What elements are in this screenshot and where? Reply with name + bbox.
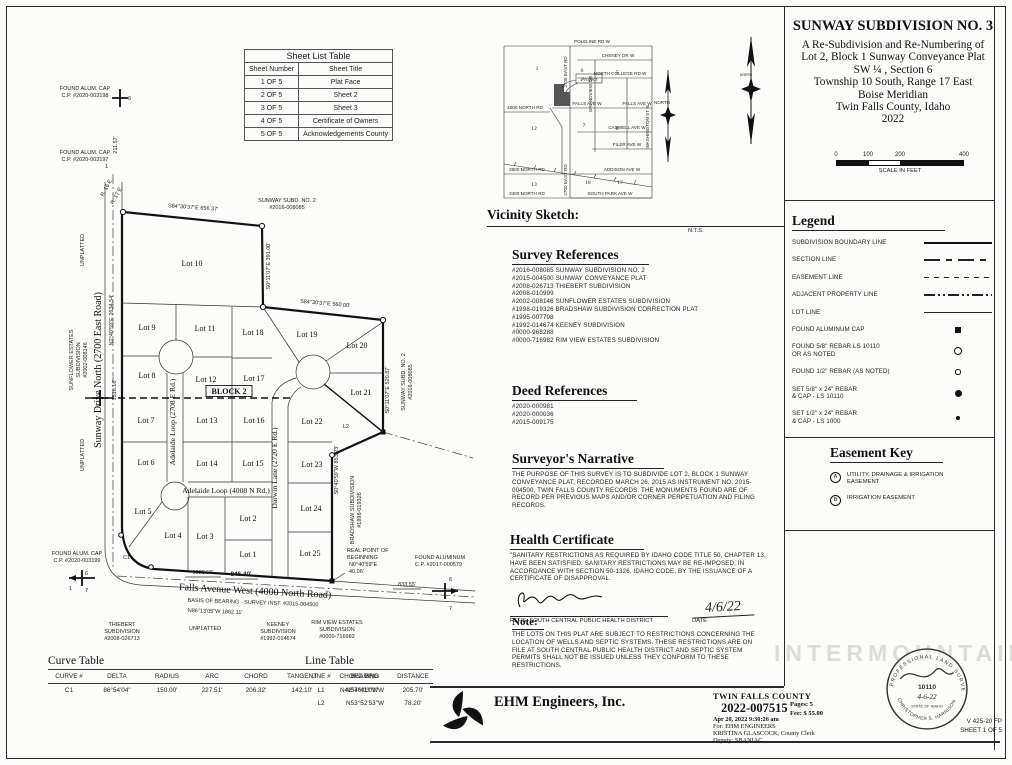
col-header: ARC (190, 673, 234, 680)
easement-label: UTILITY, DRAINAGE & IRRIGATION (847, 472, 943, 478)
road-label-sunway: Sunway Drive North (2700 East Road) (93, 292, 104, 448)
legend-item: SET 1/2" x 24" REBAR& CAP - LS 1000 (792, 410, 992, 425)
section-number: 7 (583, 123, 586, 129)
col-header: CHORD (234, 673, 278, 680)
legend-item: SECTION LINE (792, 256, 992, 263)
deed-ref-item: #2020-000036 (512, 411, 767, 419)
section-number: 1 (69, 586, 72, 592)
monument-note: FOUND ALUM. CAP (52, 551, 103, 557)
health-body: "SANITARY RESTRICTIONS AS REQUIRED BY ID… (510, 552, 772, 583)
survey-ref-item: #2015-004500 SUNWAY CONVEYANCE PLAT (512, 275, 767, 283)
adjoiner-label: SUBDIVISION (76, 342, 82, 377)
col-header: DISTANCE (393, 673, 433, 680)
narrative-body: THE PURPOSE OF THIS SURVEY IS TO SUBDIVI… (512, 471, 767, 510)
section-number: 6 (581, 68, 584, 74)
plat-subtitle: Twin Falls County, Idaho (786, 101, 1000, 113)
road-label-darwin: Darwin Lane (2720 E Rd.) (270, 427, 279, 509)
stamp-state: STATE OF IDAHO (911, 703, 943, 708)
survey-ref-item: #1995-007798 (512, 314, 767, 322)
survey-ref-item: #0000-716982 RIM VIEW ESTATES SUBDIVISIO… (512, 337, 767, 345)
block-label: BLOCK 2 (212, 387, 247, 396)
bearing-label: S0°40'59"W 853.23' (334, 446, 340, 495)
adjoiner-label: SUNWAY SUBD. NO. 2 (258, 198, 316, 204)
legend-item: ADJACENT PROPERTY LINE (792, 291, 992, 298)
lot-label: Lot 23 (301, 460, 322, 469)
legend-label: SET 5/8" x 24" REBAR (792, 386, 857, 393)
range-label: R. 17 E. (110, 185, 125, 206)
lot-label: Lot 3 (196, 532, 213, 541)
vicinity-heading: Vicinity Sketch: (487, 207, 579, 222)
north-arrow-icon: NORTH (738, 33, 764, 148)
found-half-rebar-icon (955, 369, 961, 375)
table-row: L2 N53°52'53"W 78.20' (305, 697, 433, 710)
section-number: 5 (616, 70, 619, 76)
section-number: 18 (585, 180, 591, 186)
lot-label: Lot 21 (350, 388, 371, 397)
vicinity-sketch: Project POLELINE RD W CHENEY DR W NORTH … (492, 32, 737, 217)
note-body: THE LOTS ON THIS PLAT ARE SUBJECT TO RES… (512, 631, 767, 670)
adjoiner-label: UNPLATTED (189, 626, 221, 632)
lot-label: Lot 10 (181, 259, 202, 268)
legend-item: SET 5/8" x 24" REBAR& CAP - LS 10110 (792, 386, 992, 401)
north-arrow-icon: NORTH (654, 70, 676, 162)
adjoiner-label: SUBDIVISION (104, 629, 139, 635)
lot-label: Lot 20 (346, 341, 367, 350)
section-number: 12 (531, 126, 537, 132)
legend-label: OR AS NOTED (792, 351, 835, 358)
lot-label: Lot 15 (242, 459, 263, 468)
stamp-number: 10110 (918, 684, 936, 691)
col-header: DELTA (90, 673, 144, 680)
section-number: 17 (617, 180, 623, 186)
legend-item: LOT LINE (792, 309, 992, 316)
dim-label: 846.40' (230, 571, 252, 578)
survey-ref-item: #0000-968288 (512, 329, 767, 337)
dim-label: 1518.16' (112, 380, 118, 401)
dim-label: 833.55' (398, 582, 416, 588)
lot-label: Lot 17 (243, 374, 264, 383)
section-number: 6 (449, 577, 452, 583)
narrative-heading: Surveyor's Narrative (512, 451, 664, 469)
easement-label: EASEMENT (847, 479, 879, 485)
monument-note: C.P. #2017-000579 (415, 562, 462, 568)
north-label: NORTH (740, 73, 753, 77)
adjoiner-label: KEENEY (267, 622, 290, 628)
cell: 206.32' (234, 687, 278, 694)
lot-label: Lot 13 (196, 416, 217, 425)
easement-label: IRRIGATION EASEMENT (847, 495, 915, 506)
monument-note: FOUND ALUMINUM (415, 555, 466, 561)
lot-label: Lot 14 (196, 459, 217, 468)
legend-item: SUBDIVISION BOUNDARY LINE (792, 239, 992, 246)
street-label: 4000 NORTH RD (507, 105, 543, 110)
street-label: 3600 NORTH RD (509, 167, 545, 172)
lot-label: Lot 4 (164, 531, 181, 540)
plat-subtitle: Township 10 South, Range 17 East (786, 76, 1000, 88)
road-label-adelaide-loop-n: Adelaide Loop (4008 N Rd.) (182, 486, 270, 495)
legend-label: SECTION LINE (792, 256, 912, 263)
section-number: 7 (85, 588, 88, 594)
legend-label: & CAP - LS 10110 (792, 393, 844, 400)
survey-ref-item: #2002-008146 SUNFLOWER ESTATES SUBDIVISI… (512, 298, 767, 306)
cell: 227.51' (190, 687, 234, 694)
adjoiner-label: #2016-008085 (269, 205, 304, 211)
legend-rule (784, 437, 994, 438)
vicinity-heading-rule: Vicinity Sketch: (487, 206, 784, 227)
cell: L2 (305, 700, 337, 707)
bearing-label: S84°30'37"E 656.37' (168, 203, 219, 212)
nts-label: N.T.S. (688, 228, 704, 234)
scale-tick: 400 (959, 152, 969, 158)
dim-label: 1028.56' (193, 570, 214, 576)
adjoiner-label: UNPLATTED (80, 234, 86, 266)
lot-label: Lot 6 (137, 458, 154, 467)
survey-ref-item: #2008-010999 (512, 290, 767, 298)
adjoiner-label: THIEBERT (108, 622, 136, 628)
rpb-label: REAL POINT OF (347, 548, 389, 554)
bearing-label: S84°30'37"E 560.00' (300, 299, 351, 309)
adjoiner-label: SUBDIVISION (319, 627, 354, 633)
plat-subtitle: Lot 2, Block 1 Sunway Conveyance Plat (786, 51, 1000, 63)
street-label: 2700 EAST RD (563, 164, 568, 196)
section-number: 1 (536, 66, 539, 72)
rpb-label: 40.06' (349, 569, 364, 575)
line-table-heading: Line Table (305, 655, 433, 669)
section-number: 6 (85, 571, 88, 577)
street-label: 2700 EAST RD (563, 56, 568, 88)
recording-pages: Pages: 5 (790, 700, 850, 709)
scale-tick: 200 (895, 152, 905, 158)
cell: C1 (48, 687, 90, 694)
legend-item: EASEMENT LINE (792, 274, 992, 281)
adjacent-line-sample (924, 294, 992, 295)
boundary-line-sample (924, 242, 992, 244)
legend-heading: Legend (792, 213, 945, 231)
narrative-section: Surveyor's Narrative THE PURPOSE OF THIS… (512, 450, 767, 510)
deed-references-heading: Deed References (512, 383, 637, 401)
street-label: CASWELL AVE W (608, 125, 646, 130)
line-table: Line Table LINE # BEARING DISTANCE L1 N5… (305, 655, 433, 710)
curve-tag: C1 (123, 555, 130, 561)
bearing-label: S0°11'07"E 391.00' (266, 243, 272, 290)
col-header: RADIUS (144, 673, 190, 680)
easement-key-a: A (830, 472, 841, 483)
health-heading: Health Certificate (510, 532, 644, 550)
legend-label: LOT LINE (792, 309, 912, 316)
title-block: SUNWAY SUBDIVISION NO. 3 A Re-Subdivisio… (786, 18, 1000, 126)
health-certificate-section: Health Certificate "SANITARY RESTRICTION… (510, 531, 772, 624)
legend-label: FOUND 1/2" REBAR (AS NOTED) (792, 368, 912, 375)
plat-subtitle: Boise Meridian (786, 89, 1000, 101)
note-heading: Note: (512, 616, 544, 630)
scale-caption: SCALE IN FEET (836, 168, 964, 174)
lot-label: Lot 12 (195, 375, 216, 384)
street-label: SOUTH PARK AVE W (587, 191, 633, 196)
rpb-label: BEGINNING (347, 555, 378, 561)
recording-fee: Fee: $ 55.00 (790, 709, 850, 718)
street-label: WASHINGTON ST N (645, 105, 650, 148)
panel-divider (784, 6, 785, 686)
range-label: R. 16 E. (100, 177, 115, 198)
recording-clerk: KRISTINA GLASCOCK, County Clerk (713, 730, 863, 737)
found-rebar-icon (954, 347, 962, 355)
dim-label: 211.57' (113, 136, 119, 153)
street-label: ADDISON AVE W (604, 167, 641, 172)
scale-bar-graphic (836, 160, 964, 166)
line-table-headers: LINE # BEARING DISTANCE (305, 670, 433, 683)
rpb-label: N0°40'59"E (349, 562, 377, 568)
recording-deputy: Deputy: SBANIAC (713, 737, 863, 744)
street-label: FILER AVE W (613, 142, 642, 147)
adjoiner-label: BRADSHAW SUBDIVISION (350, 476, 356, 545)
basis-of-bearing: N86°13'05"W 1862.11' (188, 608, 243, 616)
street-label: FALLS AVE W (622, 101, 652, 106)
bearing-label: N2°40'59"E 2634.54' (109, 295, 115, 346)
survey-ref-item: #1992-014674 KEENEY SUBDIVISION (512, 322, 767, 330)
signature-icon (510, 585, 660, 611)
plat-map: Lot 10 Lot 9 Lot 11 Lot 18 Lot 19 Lot 20… (25, 70, 485, 662)
legend-item: FOUND 1/2" REBAR (AS NOTED) (792, 368, 992, 375)
lot-label: Lot 1 (239, 550, 256, 559)
legend-label: ADJACENT PROPERTY LINE (792, 291, 912, 298)
cell: 150.00' (144, 687, 190, 694)
lot-label: Lot 9 (138, 323, 155, 332)
street-label: GRANDVIEW DR (588, 75, 593, 112)
legend-label: EASEMENT LINE (792, 274, 912, 281)
survey-ref-item: #2008-026713 THIEBERT SUBDIVISION (512, 283, 767, 291)
adjoiner-label: #0000-716982 (319, 634, 354, 640)
legend-label: SUBDIVISION BOUNDARY LINE (792, 239, 912, 246)
easement-rule (784, 530, 994, 531)
deed-references-section: Deed References #2020-000981 #2020-00003… (512, 382, 767, 426)
cell: N57°41'01"W (337, 687, 393, 694)
deed-ref-item: #2015-009175 (512, 419, 767, 427)
ehm-logo-icon (437, 688, 489, 740)
surveyor-stamp: PROFESSIONAL LAND SURVEYOR CHRISTOPHER S… (884, 646, 970, 732)
plat-year: 2022 (786, 113, 1000, 125)
col-header: LINE # (305, 673, 337, 680)
easement-key-b: B (830, 495, 841, 506)
plat-sheet: INTERMOUNTAIN Sheet List Table Sheet Num… (0, 0, 1012, 765)
lot-label: Lot 18 (242, 328, 263, 337)
street-label: 3400 NORTH RD (509, 191, 545, 196)
survey-references-section: Survey References #2016-008085 SUNWAY SU… (512, 246, 767, 345)
lot-label: Lot 2 (239, 514, 256, 523)
section-number: 8 (616, 126, 619, 132)
set-rebar-icon (955, 390, 962, 397)
cell: 78.20' (393, 700, 433, 707)
section-number: 13 (531, 182, 537, 188)
cell: L1 (305, 687, 337, 694)
easement-key-section: Easement Key A UTILITY, DRAINAGE & IRRIG… (830, 444, 990, 506)
easement-line-sample (924, 277, 992, 278)
street-label: NORTH COLLEGE RD W (594, 71, 647, 76)
scale-tick: 0 (834, 152, 837, 158)
plat-title: SUNWAY SUBDIVISION NO. 3 (786, 18, 1000, 35)
adjoiner-label: #1992-014674 (260, 636, 295, 642)
lot-label: Lot 8 (138, 371, 155, 380)
sheet-list-title: Sheet List Table (245, 50, 393, 63)
lot-line-sample (924, 312, 992, 313)
scale-bar: 0 100 200 400 SCALE IN FEET (836, 152, 964, 174)
monument-note: C.P. #2020-003198 (62, 93, 109, 99)
plat-subtitle: SW ¼ , Section 6 (786, 64, 1000, 76)
lot-label: Lot 11 (195, 324, 216, 333)
section-number: 1 (105, 164, 108, 170)
survey-references-heading: Survey References (512, 247, 649, 265)
adjoiner-label: SUNFLOWER ESTATES (69, 329, 75, 390)
legend-label: & CAP - LS 1000 (792, 418, 841, 425)
col-header: CURVE # (48, 673, 90, 680)
lot-label: Lot 19 (296, 330, 317, 339)
legend-section: Legend SUBDIVISION BOUNDARY LINE SECTION… (792, 212, 992, 425)
monument-note: FOUND ALUM. CAP (60, 86, 111, 92)
legend-item: FOUND 5/8" REBAR LS 10110OR AS NOTED (792, 343, 992, 358)
section-line-sample (924, 259, 992, 260)
easement-item: B IRRIGATION EASEMENT (830, 495, 990, 506)
section-number: 7 (449, 606, 452, 612)
cell: 86°54'04" (90, 687, 144, 694)
lot-label: Lot 5 (134, 507, 151, 516)
legend-label: SET 1/2" x 24" REBAR (792, 410, 857, 417)
plat-subtitle: A Re-Subdivision and Re-Numbering of (786, 39, 1000, 51)
road-label-adelaide-loop: Adelaide Loop (2708 E Rd.) (168, 378, 177, 465)
adjoiner-label: SUNWAY SUBD. NO. 2 (401, 353, 407, 411)
deed-ref-item: #2020-000981 (512, 403, 767, 411)
adjoiner-label: #2002-008146 (83, 342, 89, 377)
monument-note: C.P. #2020-003199 (54, 558, 101, 564)
lot-label: Lot 7 (137, 416, 154, 425)
note-section: Note: THE LOTS ON THIS PLAT ARE SUBJECT … (512, 612, 767, 670)
lot-label: Lot 25 (299, 549, 320, 558)
legend-label: FOUND ALUMINUM CAP (792, 326, 912, 333)
lot-label: Lot 22 (301, 417, 322, 426)
set-half-rebar-icon (956, 416, 961, 421)
section-number: 6 (128, 96, 131, 102)
aluminum-cap-icon (955, 327, 961, 333)
monument-note: C.P. #2020-003197 (62, 157, 109, 163)
adjoiner-label: #1998-019326 (357, 492, 363, 527)
adjoiner-label: UNPLATTED (80, 439, 86, 471)
recording-for: For: EHM ENGINEERS (713, 723, 863, 730)
col-header: BEARING (337, 673, 393, 680)
easement-key-heading: Easement Key (830, 445, 943, 463)
easement-item: A UTILITY, DRAINAGE & IRRIGATIONEASEMENT (830, 472, 990, 486)
cell: 205.70' (393, 687, 433, 694)
street-label: CHENEY DR W (602, 53, 635, 58)
recording-fees: Pages: 5 Fee: $ 55.00 (790, 700, 850, 718)
lot-label: Lot 24 (300, 504, 321, 513)
lot-label: Lot 16 (243, 416, 264, 425)
titleblock-rule (784, 200, 994, 201)
bearing-label: S0°11'07"E 520.87' (385, 367, 391, 414)
monument-note: FOUND ALUM. CAP (60, 150, 111, 156)
stamp-date: 4-6-22 (917, 693, 937, 701)
scale-tick: 100 (863, 152, 873, 158)
adjoiner-label: #2016-008085 (408, 364, 414, 399)
table-row: L1 N57°41'01"W 205.70' (305, 684, 433, 697)
adjoiner-label: SUBDIVISION (260, 629, 295, 635)
legend-label: FOUND 5/8" REBAR LS 10110 (792, 343, 880, 350)
firm-name: EHM Engineers, Inc. (494, 694, 625, 711)
svg-text:NORTH: NORTH (654, 100, 670, 105)
line-tag: L2 (343, 424, 349, 430)
survey-ref-item: #2016-008085 SUNWAY SUBDIVISION NO. 2 (512, 267, 767, 275)
adjoiner-label: #2008-026713 (104, 636, 139, 642)
survey-ref-item: #1998-019326 BRADSHAW SUBDIVISION CORREC… (512, 306, 767, 314)
cell: N53°52'53"W (337, 700, 393, 707)
street-label: POLELINE RD W (574, 39, 611, 44)
adjoiner-label: RIM VIEW ESTATES (311, 620, 363, 626)
legend-item: FOUND ALUMINUM CAP (792, 326, 992, 333)
